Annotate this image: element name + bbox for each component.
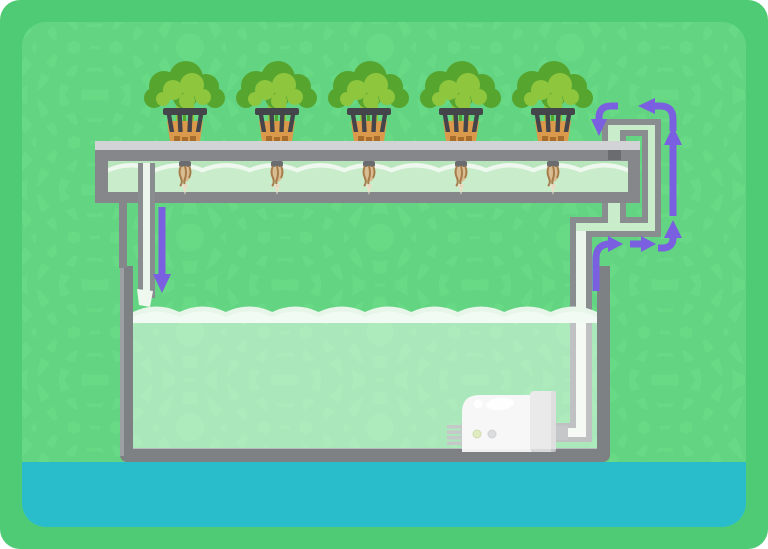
outlet-opening [608,150,621,160]
hydroponics-diagram [0,0,768,549]
tank-right-wall [597,266,610,456]
channel-left-leg [119,203,127,268]
channel-top-band [95,150,640,161]
channel-lid [95,141,640,150]
channel-drain-pipe [137,163,155,307]
channel-bottom [95,192,640,203]
tank-water [133,307,597,450]
diagram-canvas [0,0,768,549]
drain-pipe-water [143,163,150,298]
ground-water-strip [22,462,746,527]
